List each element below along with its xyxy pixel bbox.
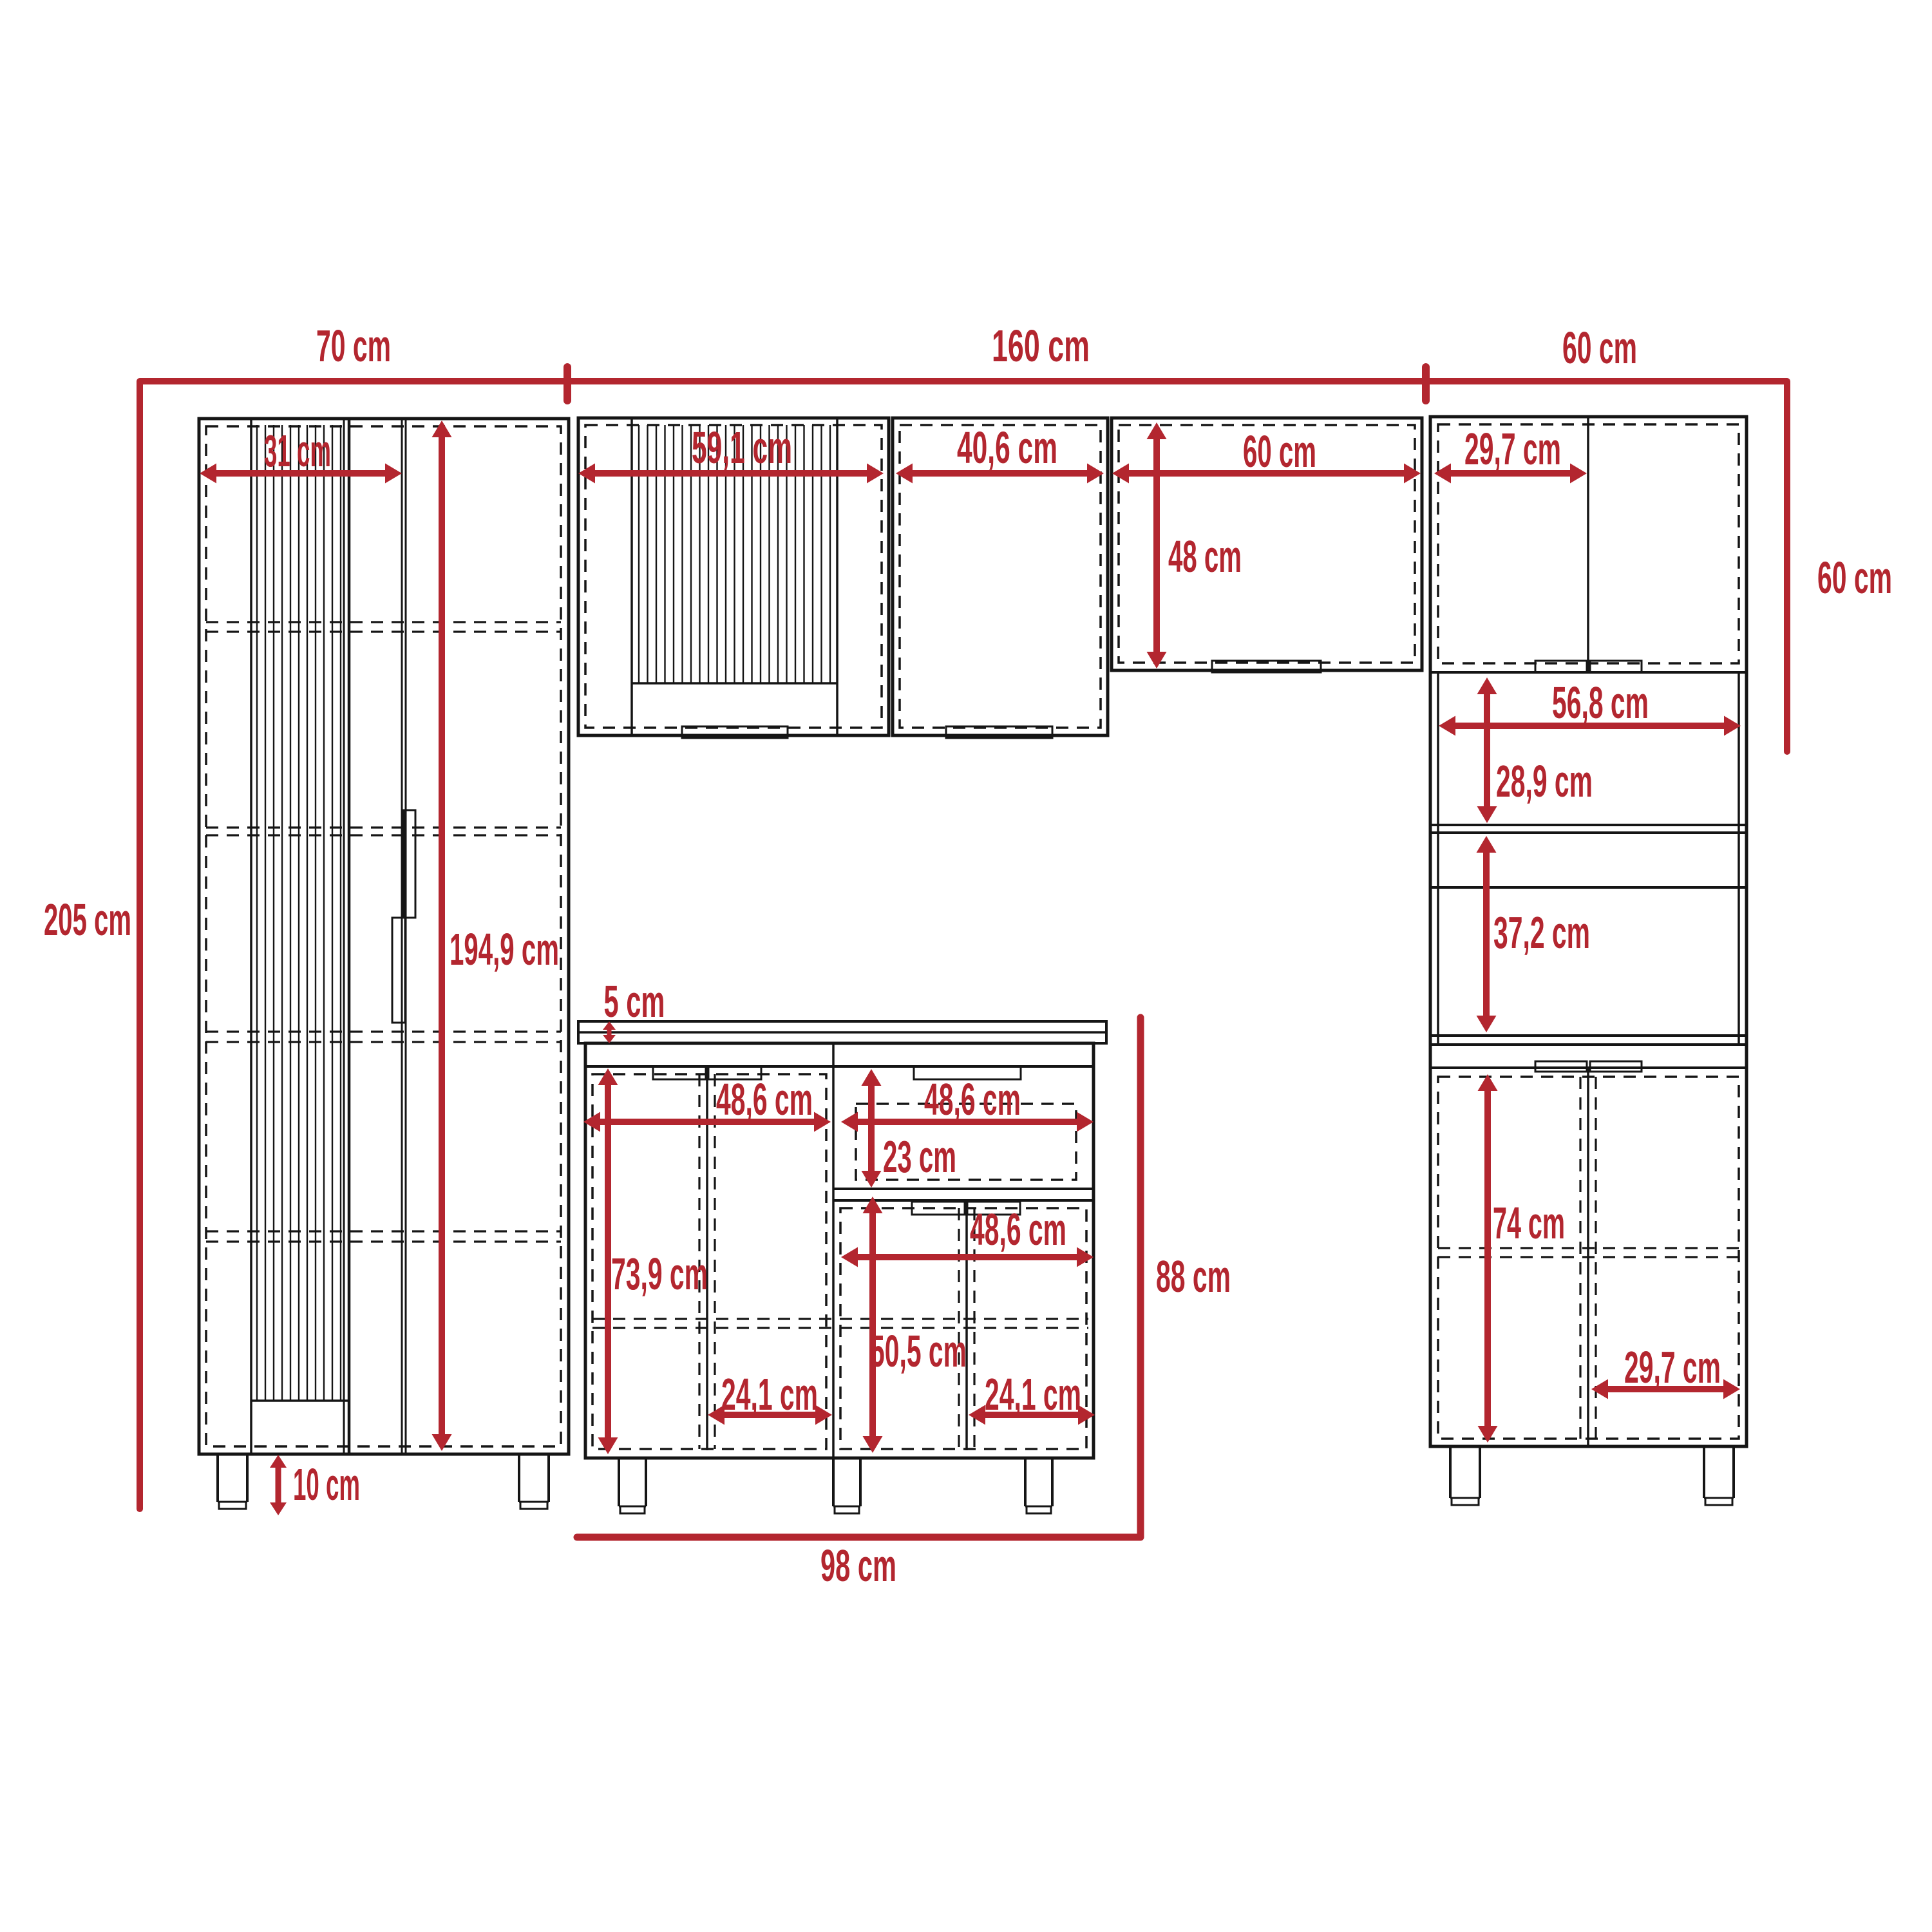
svg-text:56,8 cm: 56,8 cm: [1552, 677, 1649, 728]
svg-text:50,5 cm: 50,5 cm: [870, 1326, 967, 1376]
svg-text:160 cm: 160 cm: [992, 321, 1090, 371]
svg-text:98 cm: 98 cm: [820, 1540, 896, 1591]
svg-text:5 cm: 5 cm: [604, 976, 665, 1027]
svg-text:31 cm: 31 cm: [264, 426, 331, 476]
svg-text:205 cm: 205 cm: [44, 895, 131, 945]
svg-text:60 cm: 60 cm: [1817, 553, 1892, 603]
svg-text:48,6 cm: 48,6 cm: [716, 1074, 813, 1124]
svg-text:48,6 cm: 48,6 cm: [924, 1074, 1021, 1124]
svg-text:48,6 cm: 48,6 cm: [970, 1204, 1066, 1255]
svg-text:29,7 cm: 29,7 cm: [1464, 424, 1561, 474]
svg-text:70 cm: 70 cm: [316, 321, 391, 371]
svg-text:40,6 cm: 40,6 cm: [957, 422, 1057, 473]
svg-text:37,2 cm: 37,2 cm: [1493, 907, 1590, 958]
svg-text:73,9 cm: 73,9 cm: [611, 1249, 708, 1299]
svg-text:24,1 cm: 24,1 cm: [721, 1369, 818, 1419]
svg-text:88 cm: 88 cm: [1156, 1251, 1231, 1302]
svg-text:10 cm: 10 cm: [293, 1459, 360, 1510]
svg-text:194,9 cm: 194,9 cm: [450, 924, 559, 974]
svg-text:59,1 cm: 59,1 cm: [692, 422, 792, 473]
svg-text:28,9 cm: 28,9 cm: [1496, 756, 1593, 806]
svg-text:23 cm: 23 cm: [883, 1132, 956, 1182]
svg-text:29,7 cm: 29,7 cm: [1624, 1342, 1721, 1392]
svg-text:24,1 cm: 24,1 cm: [985, 1369, 1081, 1419]
svg-text:48 cm: 48 cm: [1168, 531, 1242, 582]
svg-text:60 cm: 60 cm: [1562, 323, 1637, 373]
svg-text:74 cm: 74 cm: [1493, 1198, 1565, 1248]
svg-text:60 cm: 60 cm: [1243, 426, 1316, 477]
